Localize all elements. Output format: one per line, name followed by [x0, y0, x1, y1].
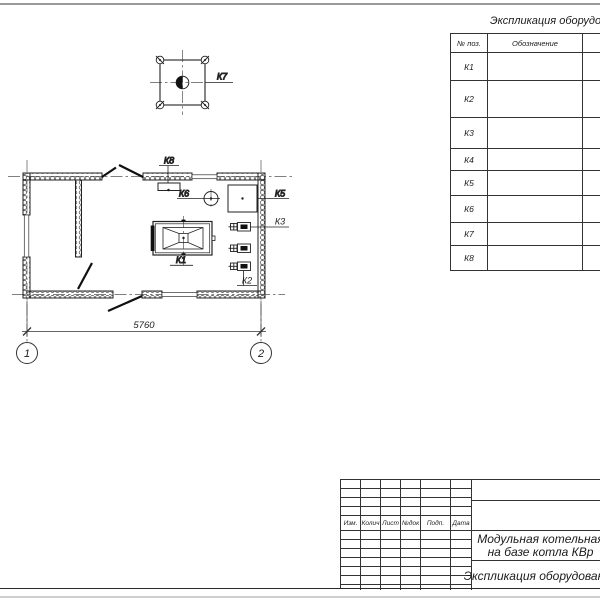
hdr-izm: Изм. — [341, 516, 360, 531]
spec-table-title: Экспликация оборудования — [490, 15, 600, 27]
dimension: 5760 — [22, 301, 266, 337]
k8-label: К8 — [164, 156, 174, 166]
title-block-right: Модульная котельная на базе котла КВр Эк… — [472, 480, 600, 590]
hdr-podp: Подп. — [421, 516, 450, 531]
wall-right — [258, 173, 265, 298]
spec-header-row: № поз. Обозначение — [451, 34, 600, 53]
table-row: К4 Гр — [451, 149, 600, 171]
wall-bottom — [23, 291, 265, 298]
table-row: К5 — [451, 171, 600, 196]
walls — [23, 173, 265, 298]
louver-bottom — [162, 293, 197, 297]
hdr-list: Лист — [381, 516, 400, 531]
project-title-line2: на базе котла КВр — [488, 546, 594, 559]
sheet-frame-bottom — [0, 588, 600, 589]
table-row: К7 — [451, 223, 600, 246]
k6-label: К6 — [179, 189, 189, 199]
table-row: К6 В — [451, 196, 600, 223]
drawing-sheet: К7 К8 К6 К5 — [0, 0, 600, 600]
title-block: Изм. Колич Лист — [340, 479, 600, 589]
louver-top — [192, 175, 217, 179]
table-row: К2 На — [451, 81, 600, 118]
window-edge-bottom — [0, 596, 600, 598]
sheet-name: Экспликация оборудования — [464, 569, 600, 583]
table-row: К1 Стал — [451, 53, 600, 81]
spec-header-pos: № поз. — [451, 34, 488, 52]
axis-1-label: 1 — [24, 348, 30, 360]
dimension-value: 5760 — [133, 320, 155, 331]
window-left — [24, 215, 29, 257]
door-leaves — [78, 165, 143, 311]
k7-label: К7 — [217, 72, 228, 82]
k3-label: К3 — [275, 217, 285, 227]
table-row: К8 — [451, 246, 600, 271]
table-row: К3 Насос — [451, 118, 600, 149]
hdr-ndok: №док — [401, 516, 420, 531]
window-edge-top — [0, 3, 600, 5]
axis-markers: 1 2 — [17, 343, 272, 364]
k5-label: К5 — [275, 189, 286, 199]
k1-boiler: К1 — [151, 220, 215, 266]
hdr-data: Дата — [451, 516, 471, 531]
project-title: Модульная котельная на базе котла КВр — [472, 531, 600, 561]
spec-header-designation: Обозначение — [488, 34, 583, 52]
revision-grid: Изм. Колич Лист — [341, 480, 472, 590]
axis-2-label: 2 — [257, 348, 264, 360]
k1-label: К1 — [176, 255, 186, 265]
partition-wall — [76, 180, 82, 257]
hdr-kolich: Колич — [361, 516, 380, 531]
k6-tank: К6 — [177, 189, 220, 206]
project-title-line1: Модульная котельная — [477, 533, 600, 546]
wall-top — [23, 173, 265, 180]
k2-label: К2 — [242, 276, 252, 286]
equipment-spec-table: № поз. Обозначение К1 Стал К2 На К3 Насо… — [450, 33, 600, 271]
k2-pumps: К2 — [229, 244, 258, 286]
